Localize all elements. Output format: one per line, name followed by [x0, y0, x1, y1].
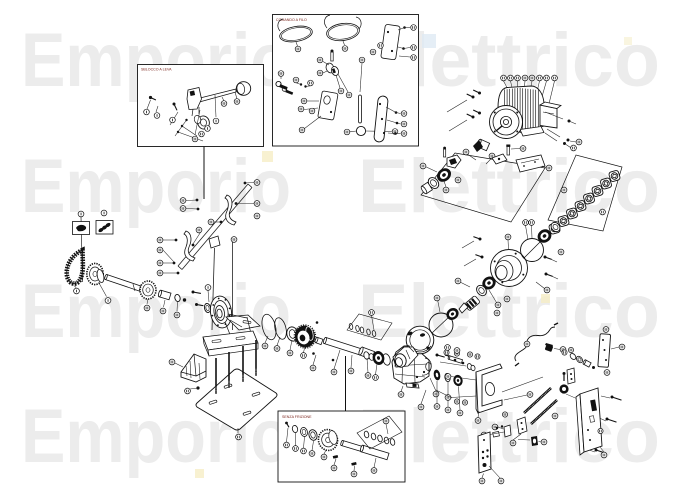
- svg-text:Elettrico: Elettrico: [358, 144, 660, 229]
- svg-text:SENZA FRIZIONE: SENZA FRIZIONE: [282, 415, 312, 419]
- svg-text:SBLOCCO A LEVA: SBLOCCO A LEVA: [141, 68, 172, 72]
